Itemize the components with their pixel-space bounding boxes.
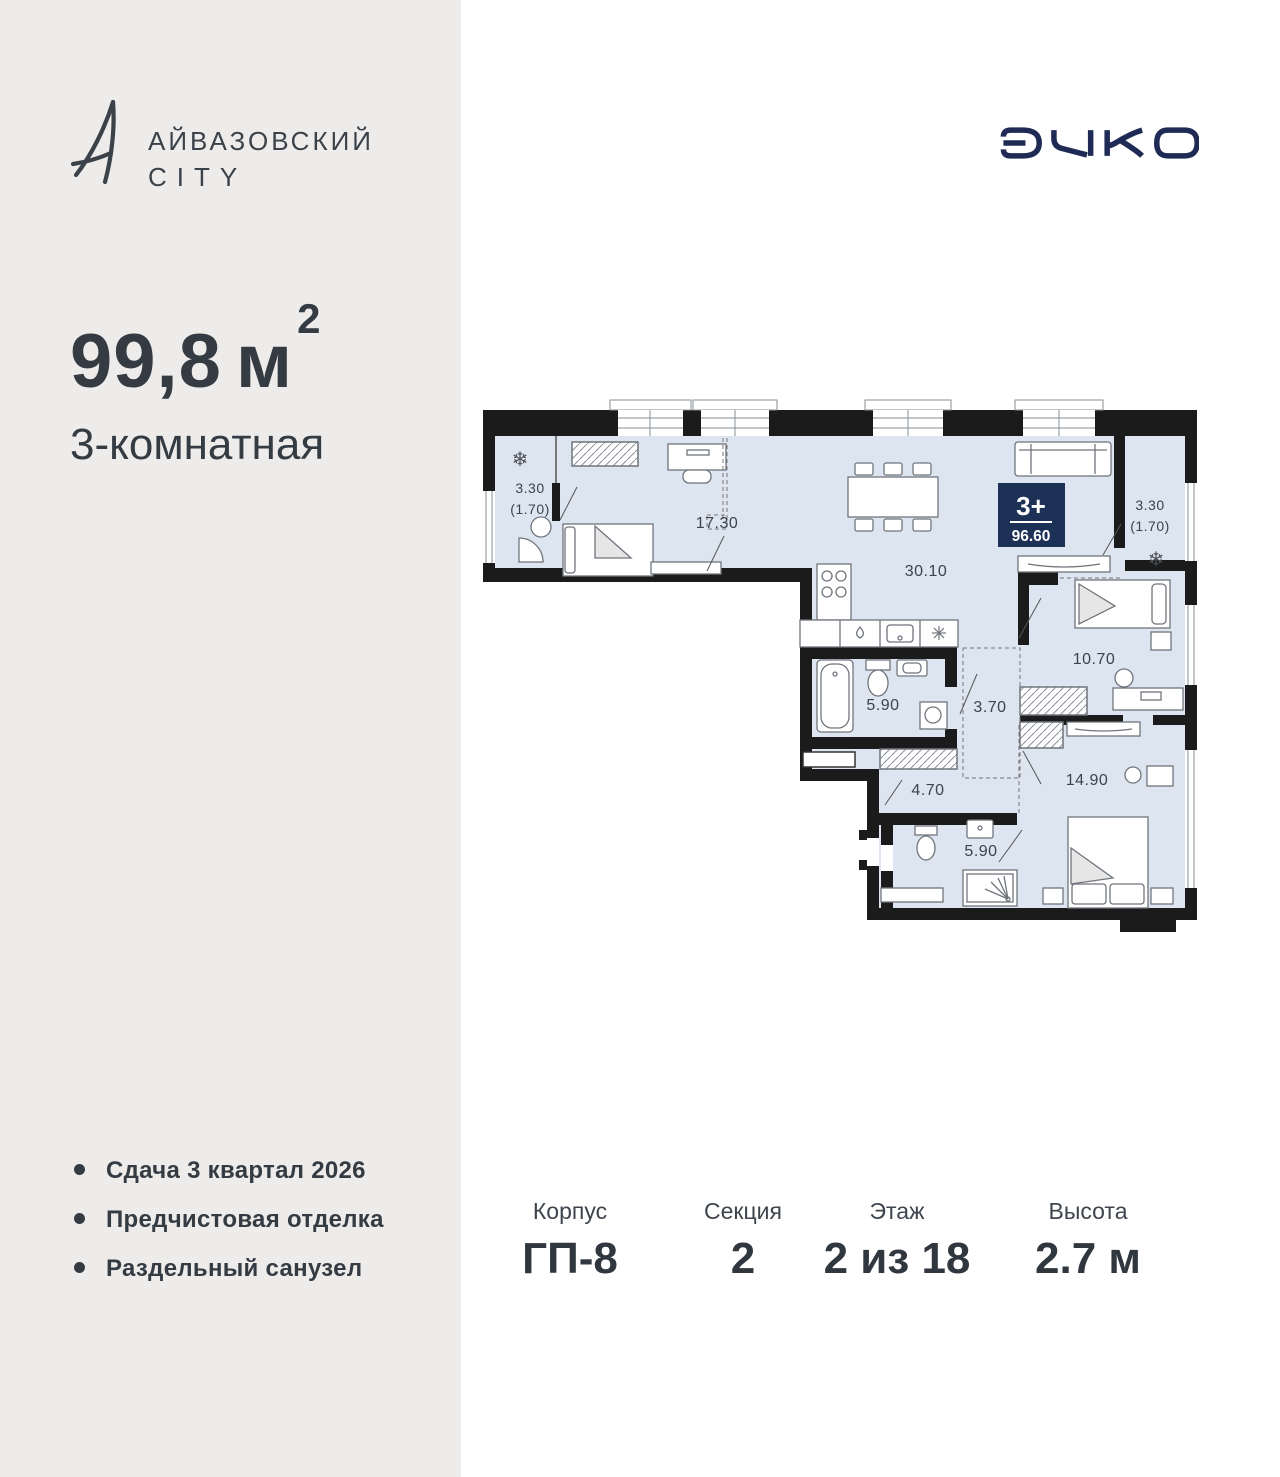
badge-area: 96.60 — [1012, 528, 1051, 545]
feature-item: Раздельный санузел — [74, 1255, 384, 1283]
wardrobe — [572, 442, 638, 466]
apartment-area: 99,8м2 — [70, 318, 318, 405]
bed-single — [1075, 580, 1170, 628]
window-top-2 — [693, 400, 777, 436]
wardrobe — [1020, 687, 1087, 715]
duct-shaft — [803, 752, 855, 767]
brand-logo: АЙВАЗОВСКИЙ CITY — [70, 98, 374, 193]
dresser — [1067, 722, 1140, 736]
wardrobe — [880, 749, 957, 769]
brand-mark-icon — [70, 98, 126, 188]
window-top-1 — [610, 400, 691, 436]
letter-o — [1157, 130, 1197, 156]
area-exponent: 2 — [297, 295, 321, 342]
ac-unit-icon: ❄ — [1148, 549, 1165, 571]
rooms-label: 3-комнатная — [70, 420, 324, 470]
feature-item: Предчистовая отделка — [74, 1206, 384, 1234]
apartment-badge: 3+ 96.60 — [998, 483, 1065, 547]
ac-unit-icon: ❄ — [512, 449, 529, 471]
window-right-bedroom2 — [1185, 605, 1197, 685]
room-label-bedroom1: 17.30 — [696, 515, 739, 532]
stove — [817, 564, 851, 620]
shower-cabin — [963, 870, 1017, 906]
room-label-corridor: 4.70 — [911, 782, 944, 799]
room-label-balcony-right: 3.30 — [1135, 497, 1164, 513]
kitchen-counter — [800, 620, 958, 647]
brand-name-city: CITY — [148, 162, 374, 193]
info-vysota: Высота 2.7 м — [978, 1198, 1198, 1284]
room-label-balcony-left2: (1.70) — [510, 501, 550, 517]
developer-logo-enko: ЭНКО — [997, 124, 1199, 162]
toilet — [915, 826, 937, 860]
tv-console — [1018, 556, 1110, 572]
floor-plan: ❄ ❄ 3.30 (1.70) 17.30 30.10 5.90 3.70 10… — [483, 396, 1197, 936]
badge-rooms: 3+ — [1016, 491, 1046, 521]
room-label-balcony-left: 3.30 — [515, 480, 544, 496]
wardrobe — [1020, 722, 1063, 748]
bullet-icon — [74, 1262, 85, 1273]
bath-sink — [897, 660, 927, 676]
entry-door-gap — [867, 838, 879, 866]
room-label-shower: 5.90 — [964, 843, 997, 860]
shower-door-gap — [881, 845, 893, 871]
shower-sink — [967, 820, 993, 838]
letter-e — [1003, 130, 1039, 156]
bullet-icon — [74, 1164, 85, 1175]
bullet-icon — [74, 1213, 85, 1224]
hall-bench — [881, 888, 943, 902]
sidebar: АЙВАЗОВСКИЙ CITY 99,8м2 3-комнатная Сдач… — [0, 0, 461, 1477]
room-label-living: 30.10 — [905, 563, 948, 580]
info-value: 2.7 м — [978, 1234, 1198, 1284]
area-value: 99,8 — [70, 319, 222, 404]
info-label: Высота — [978, 1198, 1198, 1225]
window-left-balcony — [483, 491, 495, 563]
brand-name: АЙВАЗОВСКИЙ — [148, 126, 374, 157]
bathtub — [817, 660, 853, 732]
sofa — [1015, 442, 1111, 476]
window-right-bedroom3 — [1185, 750, 1197, 888]
room-label-bath: 5.90 — [866, 697, 899, 714]
room-label-bedroom2: 10.70 — [1073, 651, 1116, 668]
balcony-table — [531, 517, 551, 537]
bed-single — [563, 524, 653, 576]
window-top-4 — [1015, 400, 1103, 436]
room-label-hall: 3.70 — [973, 699, 1006, 716]
nightstand — [1151, 632, 1171, 650]
letter-k — [1107, 130, 1142, 156]
info-label: Этаж — [787, 1198, 1007, 1225]
vanity-desk — [1125, 766, 1173, 786]
area-unit: м — [236, 319, 293, 404]
feature-list: Сдача 3 квартал 2026 Предчистовая отделк… — [74, 1157, 384, 1304]
info-value: 2 из 18 — [787, 1234, 1007, 1284]
dining-table — [848, 463, 938, 531]
bed-double — [1068, 817, 1148, 908]
toilet — [866, 660, 890, 696]
room-label-balcony-right2: (1.70) — [1130, 518, 1170, 534]
sink-icon — [887, 625, 913, 642]
vent-icon — [932, 626, 946, 640]
washing-machine — [920, 702, 947, 729]
window-top-3 — [865, 400, 951, 436]
nightstand — [1151, 888, 1173, 904]
info-etazh: Этаж 2 из 18 — [787, 1198, 1007, 1284]
letter-n — [1054, 130, 1091, 156]
feature-item: Сдача 3 квартал 2026 — [74, 1157, 384, 1185]
window-right-balcony — [1185, 483, 1197, 561]
nightstand — [1043, 888, 1063, 904]
room-label-bedroom3: 14.90 — [1066, 772, 1109, 789]
